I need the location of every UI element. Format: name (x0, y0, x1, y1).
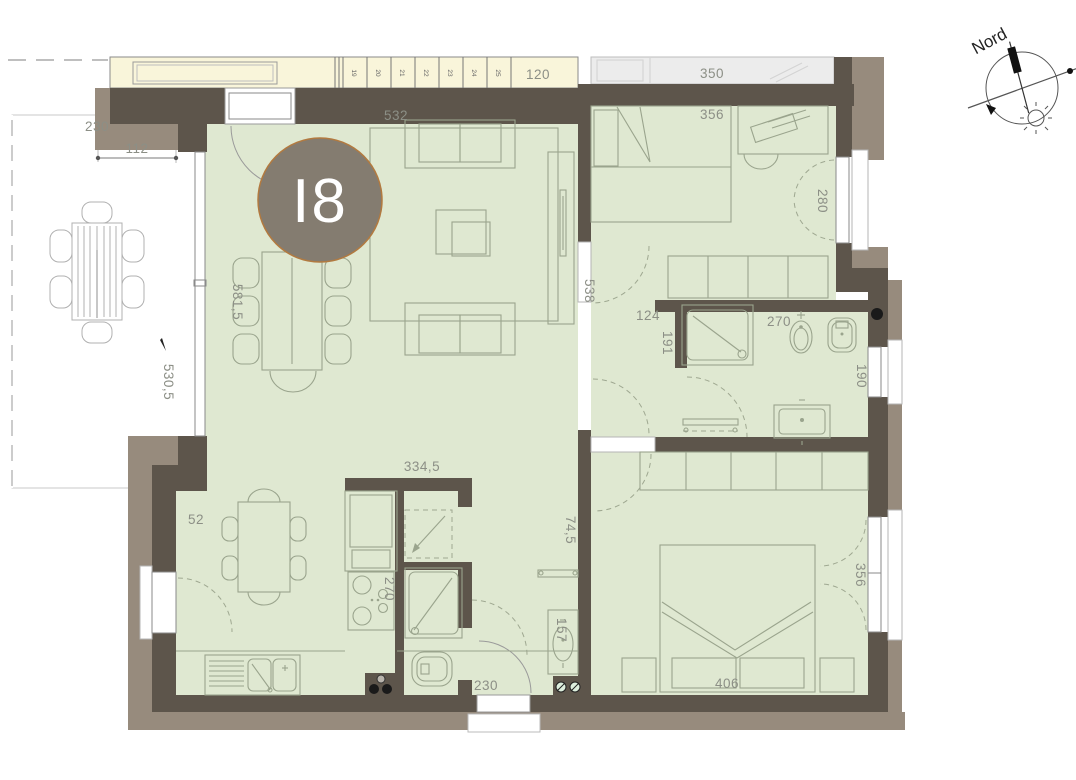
dim-label-bath-length: 191 (660, 331, 675, 355)
bottom-door-opening (477, 695, 530, 712)
dim-label-bedroom1-width: 356 (700, 107, 724, 122)
north-compass: Nord (968, 24, 1076, 134)
kitchen-window (152, 572, 176, 633)
dim-label-living-wall: 538 (582, 279, 597, 303)
dim-label-bath-window: 190 (854, 364, 869, 388)
stair-step-number: 24 (470, 69, 477, 77)
stair-corridor: 19 20 21 22 23 24 25 120 (110, 57, 578, 88)
riser-box (553, 676, 583, 695)
bedroom-1-floor (591, 106, 836, 302)
unit-badge-label: I8 (292, 167, 348, 236)
stair-step-number: 19 (350, 69, 357, 77)
stair-step-number: 23 (446, 69, 453, 77)
dim-label-bedroom2-width: 406 (715, 676, 739, 691)
dim-label-hall-sink: 157 (554, 618, 569, 642)
stair-step-number: 25 (494, 69, 501, 77)
dim-label-bedroom1-window: 280 (815, 189, 830, 213)
floor-plan-page: 19 20 21 22 23 24 25 120 350 (0, 0, 1076, 780)
dim-label-terrace-width: 230 (85, 119, 109, 134)
dim-label-bath-width: 270 (767, 314, 791, 329)
bedroom-2-door-opening (591, 437, 655, 452)
bathroom-floor (591, 300, 868, 452)
dim-label-bedroom2-window: 356 (853, 563, 868, 587)
riser-dot (871, 308, 883, 320)
unit-badge[interactable]: I8 (258, 138, 382, 262)
dim-label-kitchen-depth: 270 (382, 577, 397, 601)
bedroom-2-window (868, 517, 881, 632)
door-threshold (468, 714, 540, 732)
dim-label-entrance-door: 230 (474, 678, 498, 693)
dim-label-living-length: 581,5 (230, 284, 245, 320)
living-room-glass-wall (195, 152, 205, 436)
dim-label-living-width: 532 (384, 108, 408, 123)
terrace (12, 115, 200, 488)
dim-label-corridor-120: 120 (526, 67, 550, 82)
dim-label-terrace-length: 530,5 (161, 364, 176, 400)
dim-label-hall-width: 74,5 (563, 516, 578, 544)
stair-step-number: 22 (422, 69, 429, 77)
stair-step-number: 20 (374, 69, 381, 77)
dim-label-terrace-offset: 112 (125, 141, 148, 156)
riser-box (365, 673, 398, 695)
neighbor-unit: 350 (591, 57, 834, 84)
compass-label: Nord (969, 24, 1010, 58)
dim-label-hall-bath: 124 (636, 308, 660, 323)
dim-label-kitchen-wall: 334,5 (404, 459, 440, 474)
dim-label-neighbor-350: 350 (700, 66, 724, 81)
floor-plan-svg: 19 20 21 22 23 24 25 120 350 (0, 0, 1076, 780)
stair-step-number: 21 (398, 69, 405, 77)
sun-icon (1020, 102, 1052, 134)
dim-label-kitchen-niche: 52 (188, 512, 204, 527)
bedroom-1-window (836, 157, 849, 243)
